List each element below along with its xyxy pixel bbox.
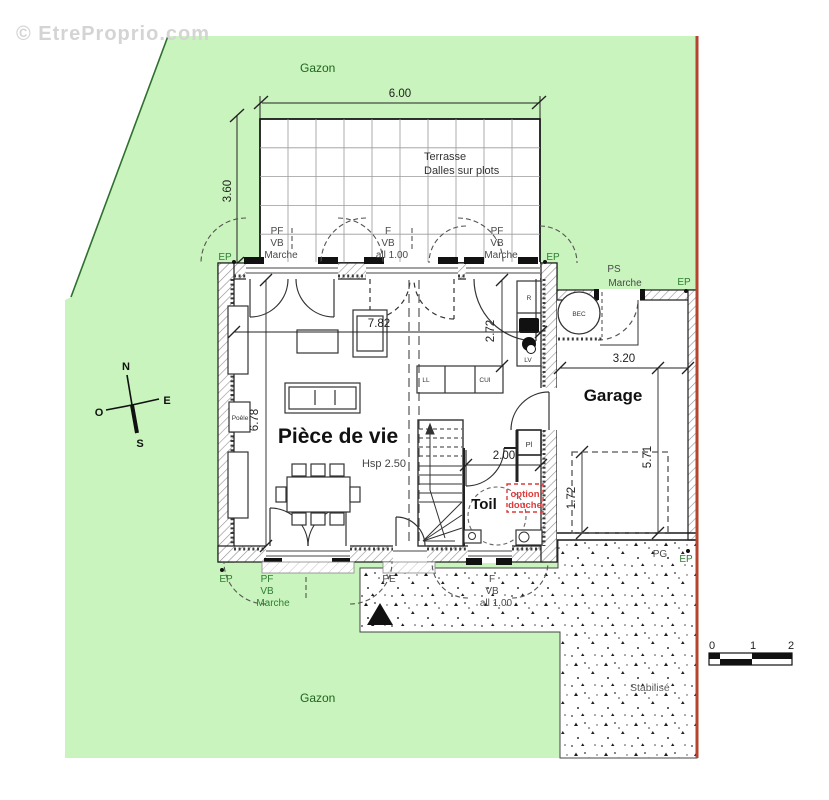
garage-block: BEC 3.20 5.71 1.72 Garage [554,289,697,540]
coffee-table [297,330,338,353]
hand-basin [464,530,481,543]
label-pf-bottom: PF [261,574,274,585]
label-vb-topleft: VB [270,238,284,249]
label-f-bottomright: F [489,574,495,585]
dim-garage-width: 3.20 [613,353,635,365]
compass-east: E [163,395,170,407]
dining-table [287,477,350,512]
terrace-label-line1: Terrasse [424,151,466,163]
dim-terrace-depth: 3.60 [222,180,234,202]
dim-garage-depth: 5.71 [642,446,654,468]
label-pf-topleft: PF [271,226,284,237]
compass-north: N [122,361,130,373]
label-pg: PG [653,549,668,560]
fridge-label: R [527,295,532,302]
label-marche-ps: Marche [608,278,642,289]
floor-plan-page: © EtreProprio.com Gazon Gazon Stabilisé … [0,0,829,800]
label-all-topcenter: all 1.00 [376,250,409,261]
shower-option-label1: option [510,489,539,500]
label-ep-garage: EP [677,277,691,288]
label-marche-bottom: Marche [256,598,290,609]
sofa [228,306,248,374]
dim-kitchen-depth: 2.72 [485,320,497,342]
label-ps: PS [607,264,621,275]
ceiling-height-label: Hsp 2.50 [362,458,406,470]
label-vb-bottomright: VB [485,586,499,597]
lawn-label-top: Gazon [300,61,335,75]
stove-label: Poêle [232,415,249,422]
toilet-label: Toil [471,496,497,513]
scale-0: 0 [709,640,715,652]
living-room-label: Pièce de vie [278,425,398,448]
dim-living-width: 7.82 [368,318,390,330]
scale-2: 2 [788,640,794,652]
floor-plan-svg: © EtreProprio.com Gazon Gazon Stabilisé … [0,0,829,800]
label-pe: PE [382,574,396,585]
kitchen-label: CUI [479,377,490,384]
scale-1: 1 [750,640,756,652]
label-ep-bottomright: EP [679,554,693,565]
bench [228,452,248,518]
garage-service-door-gap [598,289,640,301]
exterior-steps [262,562,435,573]
dim-toilet-width: 2.00 [493,450,515,462]
compass-south: S [136,438,143,450]
label-marche-topleft: Marche [264,250,298,261]
label-vb-topright: VB [490,238,504,249]
dim-living-depth: 6.78 [249,409,261,431]
label-ep-bottomleft: EP [219,574,233,585]
label-ep-topleft: EP [218,252,232,263]
stabilized-label: Stabilisé [630,682,670,694]
island-top [289,387,356,409]
closet-label: Pl [526,440,533,449]
label-pf-topright: PF [491,226,504,237]
dishwasher-label: LV [524,357,532,364]
shower-option-label2: douche [508,500,542,511]
label-vb-topcenter: VB [381,238,395,249]
label-marche-topright: Marche [484,250,518,261]
washer-label: LL [422,377,430,384]
lawn-label-bottom: Gazon [300,691,335,705]
label-ep-topright: EP [546,252,560,263]
watermark-text: © EtreProprio.com [16,23,210,45]
label-vb-bottom: VB [260,586,274,597]
label-all-bottomright: all 1.00 [480,598,513,609]
house-floor [218,263,557,562]
water-heater-label: BEC [572,311,586,318]
dim-terrace-width: 6.00 [389,88,411,100]
house: R LV LL CUI Poêle [218,257,558,565]
label-f-topcenter: F [385,226,391,237]
wc-bowl [519,532,529,542]
compass-west: O [95,407,104,419]
terrace-label-line2: Dalles sur plots [424,165,500,177]
garage-label: Garage [584,386,643,405]
